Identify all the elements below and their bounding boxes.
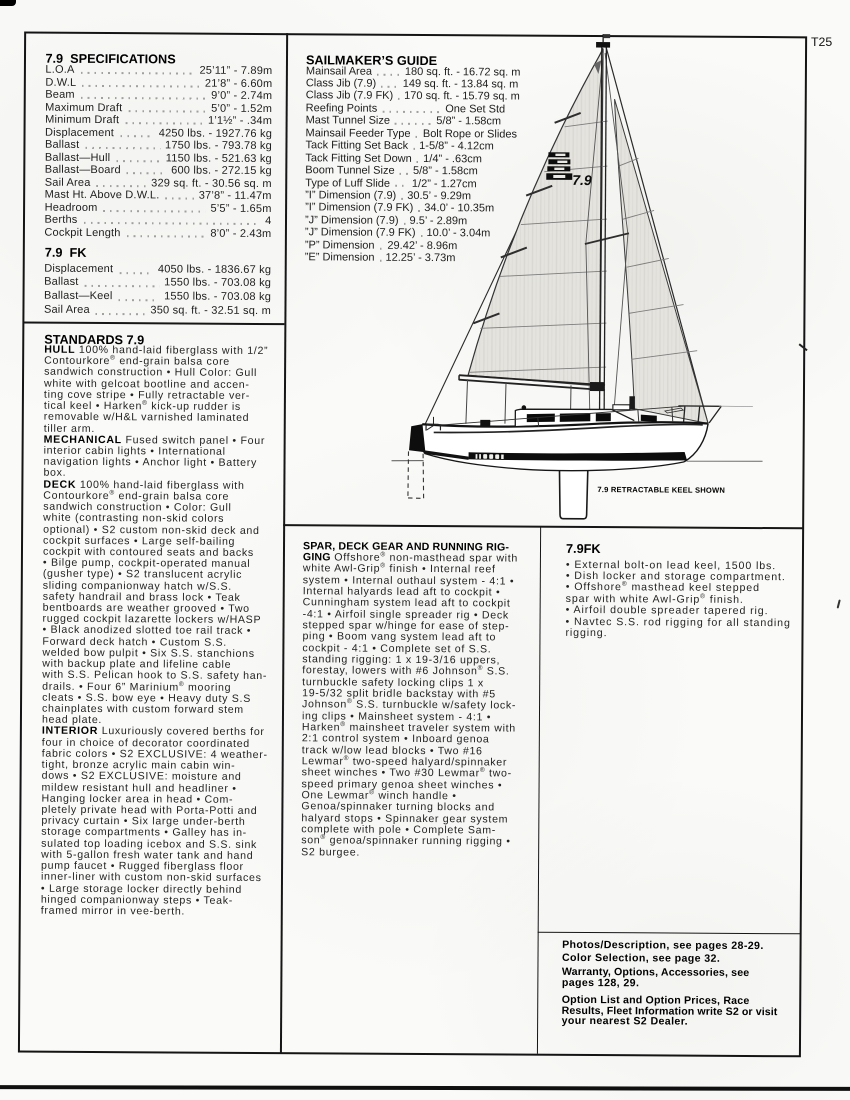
svg-text:7.9: 7.9 bbox=[572, 172, 592, 188]
